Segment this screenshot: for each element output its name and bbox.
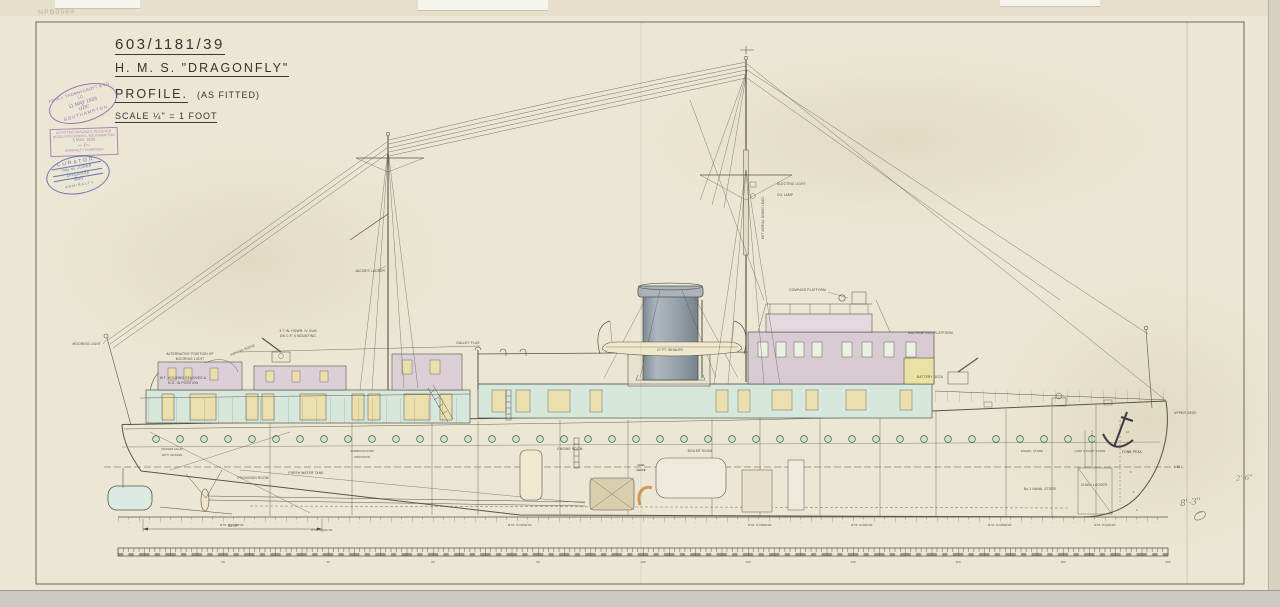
- annotation: W.T. HOUSING REMOVED &: [160, 376, 207, 380]
- annotation: PROVISION ROOM: [237, 476, 268, 480]
- annotation: JACOB'S LADDER: [355, 269, 385, 273]
- paper-crease: [1186, 22, 1188, 584]
- receipt-line3: ADMIRALTY OVERSEER: [51, 146, 117, 153]
- annotation: MACHINE GUN PLATFORM: [908, 331, 953, 335]
- annotation: GALLEY FLUE: [456, 341, 480, 345]
- scale-number: 200: [1165, 560, 1170, 564]
- annotation: PETTY OFFICERS: [162, 454, 183, 457]
- ensign-staff: [107, 338, 131, 425]
- scale-number: 180: [1060, 560, 1065, 564]
- paper-tear: [55, 0, 140, 9]
- annotation: OFFICERS GALLEY: [161, 448, 183, 451]
- receipt-stamp: AS FITTED DRAWINGS RECEIVED WOOLSTON WOR…: [50, 127, 119, 157]
- masthead-vane: [740, 46, 754, 54]
- paper-crease: [640, 22, 642, 584]
- scale-number: 120: [745, 560, 750, 564]
- annotation: BOILER ROOM: [688, 449, 713, 453]
- view-note: (AS FITTED): [197, 90, 260, 100]
- annotation: ON C.P. II MOUNTING: [280, 334, 316, 338]
- negative-number-mark: NPB0569: [38, 8, 75, 16]
- view-label: PROFILE.: [115, 87, 188, 103]
- annotation: SPIRIT ROOM: [354, 456, 370, 459]
- annotation: ENGINE ROOM: [557, 447, 582, 451]
- annotation: OIL LAMP: [777, 193, 793, 197]
- stern-dimension: 92'-4": [228, 523, 239, 528]
- cowl-vents: [500, 349, 526, 356]
- scale-note: SCALE ¼" = 1 FOOT: [115, 111, 217, 123]
- boiler: [656, 458, 726, 498]
- annotation: L.W.L.: [1174, 465, 1184, 469]
- paper-tear: [1000, 0, 1100, 7]
- scale-number: 20: [221, 560, 225, 564]
- annotation: W/T AERIAL DOWN LEAD: [761, 197, 765, 239]
- scale-number: 60: [431, 560, 435, 564]
- bulkhead-label: W.T.B. TO MAIN DK.: [1094, 524, 1116, 527]
- paper-right-edge: [1268, 0, 1280, 607]
- annotation: FRESH WATER TANK: [288, 471, 324, 475]
- annotation: MOORING LIGHT: [73, 342, 101, 346]
- scale-number: 40: [326, 560, 330, 564]
- rangefinder: [852, 292, 866, 304]
- forward-gun: [948, 358, 978, 384]
- annotation: ELECTRIC LIGHT: [777, 182, 806, 186]
- bulkhead-label: W.T.B. TO MAIN DK.: [311, 529, 333, 532]
- annotation: BATTERY DECK: [917, 375, 944, 379]
- funnel-cap: [638, 286, 703, 297]
- annotation: COMPASS PLATFORM: [789, 288, 826, 292]
- annotation: LAMP & PAINT STORE: [1075, 449, 1106, 453]
- annotation: MOORING LIGHT: [176, 357, 204, 361]
- funnel: [604, 283, 738, 380]
- propeller: [201, 489, 209, 511]
- annotation: M.G. IN POSITION: [168, 381, 199, 385]
- scale-bar: [118, 548, 1168, 556]
- annotation: CHAIN LOCKER: [1081, 483, 1108, 487]
- drawing-number: 603/1181/39: [115, 36, 225, 55]
- porthole-row: [150, 433, 1095, 445]
- paper-tear: [418, 0, 548, 11]
- scale-number: 160: [955, 560, 960, 564]
- annotation: 3·7 IN. HOWR. IV GUN: [279, 329, 317, 333]
- view-title: PROFILE.(AS FITTED): [115, 87, 260, 101]
- bulkhead-label: W.T.B. TO UPPER DK.: [508, 524, 533, 527]
- annotation: ALTERNATIVE POSITION OF: [166, 352, 213, 356]
- annotation: WARDROOM STORE: [350, 450, 374, 453]
- annotation: 27 FT. WHALER: [657, 348, 683, 352]
- bulkhead-label: W.T.B. TO UPPER DK.: [988, 524, 1013, 527]
- datum-lines: [118, 517, 1168, 556]
- scanned-ship-plan: MOORING LIGHT ALTERNATIVE POSITION OF MO…: [0, 0, 1280, 607]
- scan-background-strip: [0, 590, 1280, 607]
- pencil-note-2: 2'-6": [1236, 473, 1253, 482]
- battery-deck-panel: [904, 358, 934, 384]
- ship-name: H. M. S. "DRAGONFLY": [115, 61, 289, 77]
- annotation: FORE PEAK: [1122, 450, 1143, 454]
- scale-number: 140: [850, 560, 855, 564]
- scale-number: 80: [536, 560, 540, 564]
- upper-bridge: [766, 314, 872, 332]
- annotation: No.1 NAVAL STORE: [1024, 487, 1057, 491]
- bulkhead-label: W.T.B. TO UPPER DK.: [748, 524, 773, 527]
- machinery: [520, 450, 804, 512]
- rudder: [108, 486, 152, 510]
- bulkhead-label: W.T.B. TO MAIN DK.: [851, 524, 873, 527]
- searchlight: [839, 295, 845, 301]
- air-vessel-tank: [520, 450, 542, 500]
- annotation: ENGRS. STORE: [1021, 449, 1043, 453]
